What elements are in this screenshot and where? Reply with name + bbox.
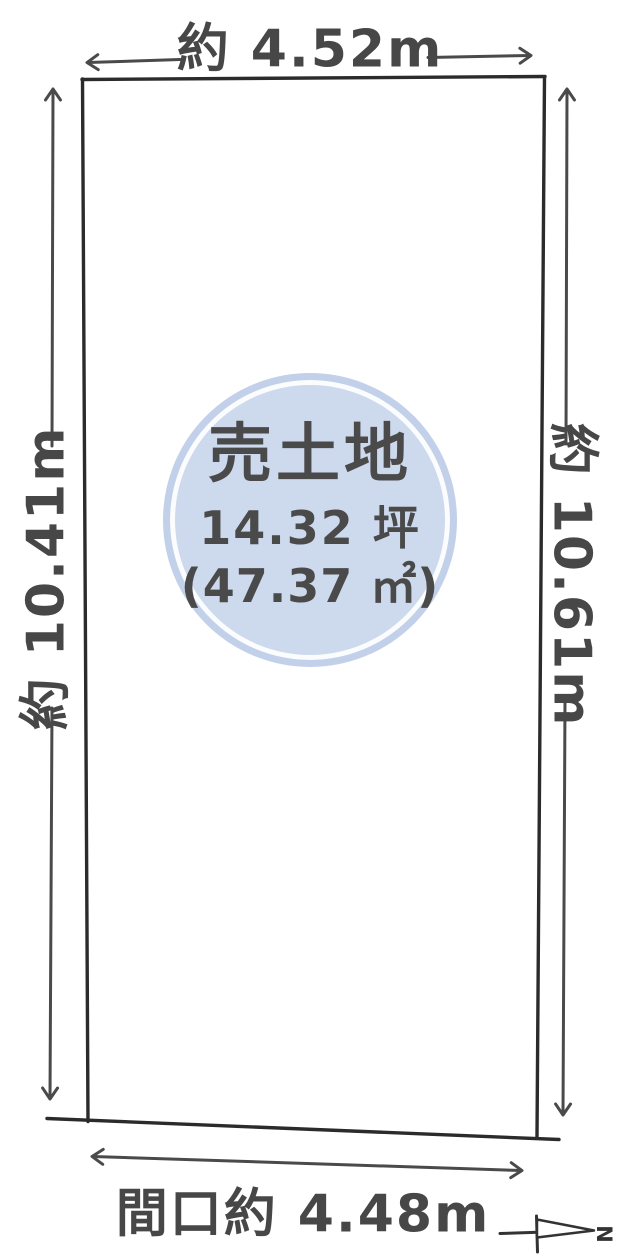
- badge-area-sqm: (47.37 ㎡): [181, 563, 440, 609]
- north-label: N: [592, 1225, 616, 1243]
- dimension-label-left: 約 10.41m: [4, 426, 79, 731]
- badge-area-tsubo: 14.32 坪: [199, 505, 421, 551]
- plot-edge-bottom: [47, 1119, 559, 1140]
- dimension-label-frontage: 間口約 4.48m: [116, 1172, 491, 1247]
- plot-edge-left: [83, 79, 89, 1122]
- dimension-label-top: 約 4.52m: [177, 7, 444, 82]
- north-arrow-flag: [537, 1220, 594, 1238]
- sale-land-badge: 売土地 14.32 坪 (47.37 ㎡): [163, 373, 457, 667]
- land-plot-diagram: 約 4.52m 約 10.41m 約 10.61m 間口約 4.48m 売土地 …: [0, 0, 620, 1258]
- badge-title: 売土地: [208, 423, 412, 487]
- dimension-arrow-bottom: [93, 1157, 521, 1171]
- dimension-label-right: 約 10.61m: [540, 423, 615, 728]
- north-arrow: [500, 1216, 594, 1252]
